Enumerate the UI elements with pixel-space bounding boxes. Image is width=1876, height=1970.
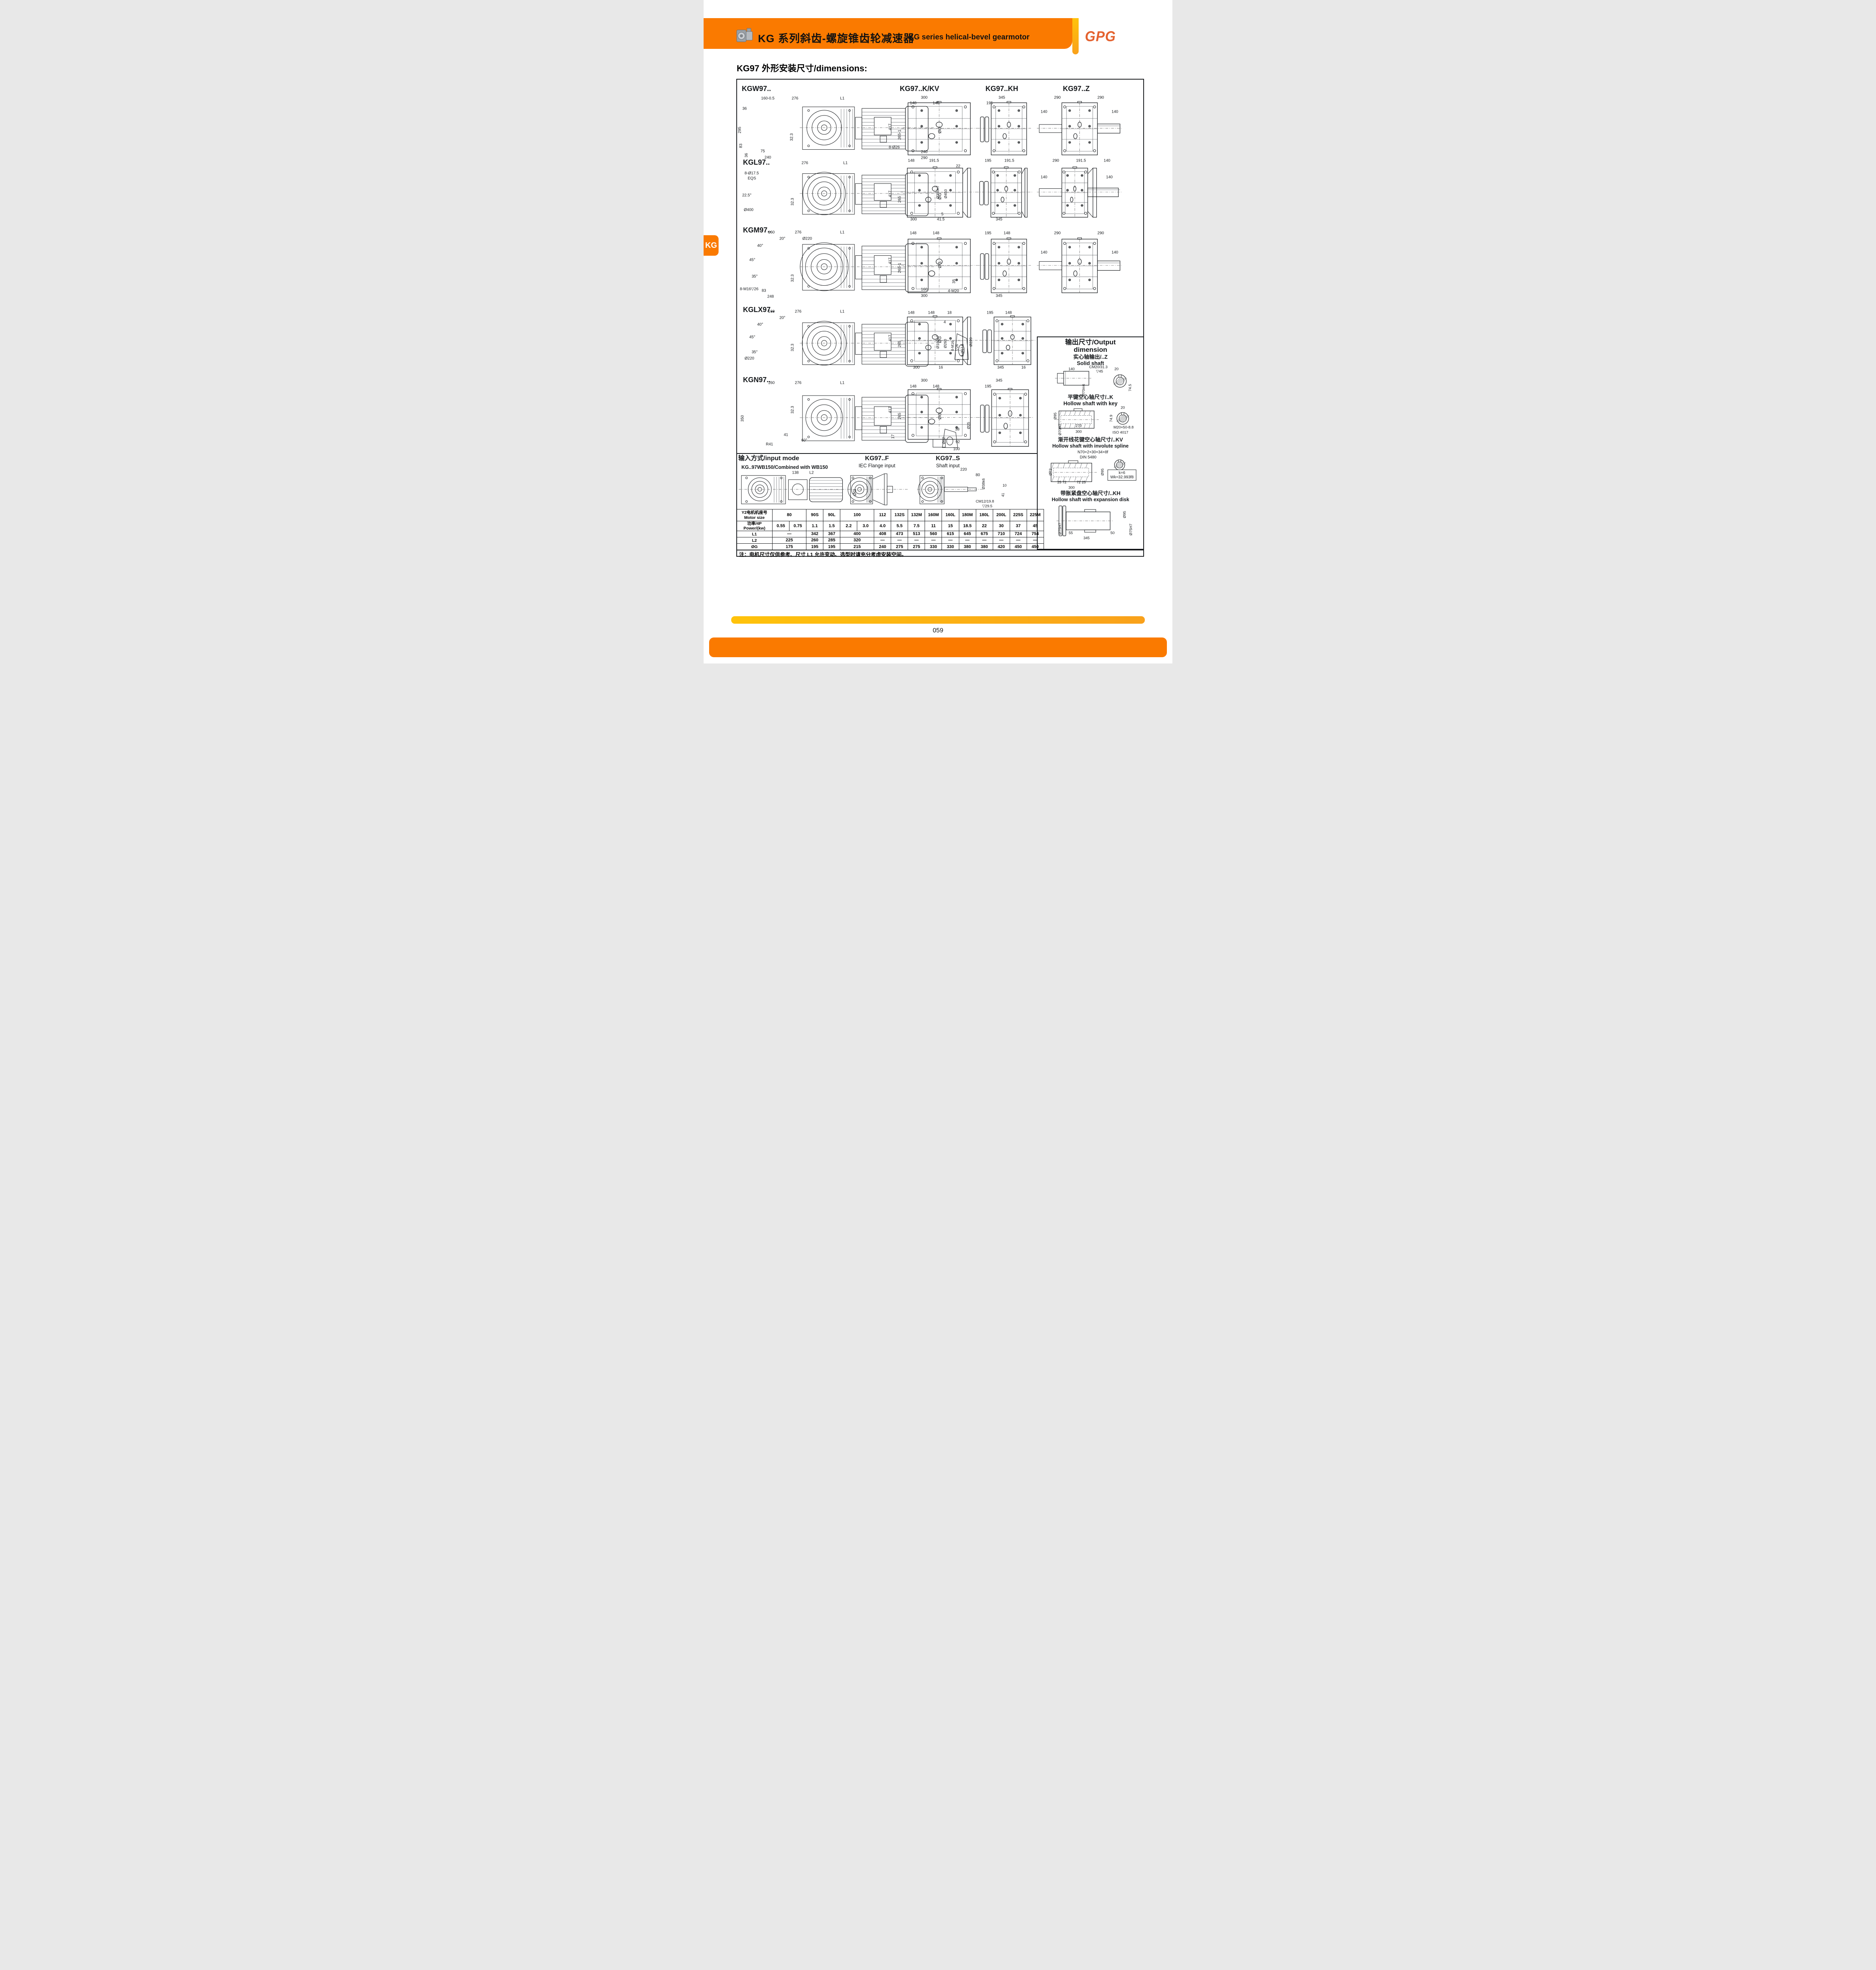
dim-label: 38 [955,427,959,431]
dim-label: 25 [1057,480,1061,484]
dim-label: 22 [956,164,960,168]
table-cell: 615 [942,531,959,537]
dim-label: KG97..Z [1063,85,1090,93]
input-mode-divider [736,453,1038,454]
dim-label: Ø95 [1123,511,1127,518]
dim-label: 195 [985,231,992,235]
dim-label: 74.9 [1110,415,1114,422]
gearmotor-side-view [850,472,905,507]
dim-label: ISO 4017 [1113,431,1128,435]
dim-label: KG97..F [865,455,889,462]
table-cell: 112 [874,509,891,521]
dim-label: 140 [1041,175,1048,179]
dim-label: 240 [921,150,928,154]
dim-label: 191.5 [929,158,939,163]
dim-label: 148 [933,384,940,388]
dim-label: 160 [921,287,928,292]
table-cell: 560 [925,531,942,537]
dim-label: Ø450 [944,189,949,198]
gearmotor-side-view [919,472,981,507]
table-cell: 0.75 [789,521,806,531]
dim-label: 16 [938,365,943,370]
dim-label: ØG [938,413,942,419]
table-cell: 160L [942,509,959,521]
dim-label: Ø220 [802,236,812,241]
table-cell: — [925,537,942,544]
dim-label: L1 [840,309,844,314]
table-cell: 0.55 [773,521,789,531]
table-cell: 11 [925,521,942,531]
gearbox-front-view [1039,238,1120,294]
brand-logo: GPG [1085,29,1116,45]
dim-label: Hollow shaft with expansion disk [1052,497,1129,502]
table-cell: 320 [840,537,874,544]
table-cell: — [976,537,993,544]
dim-label: 265 [897,413,902,420]
dim-label: 8-M16 [951,341,955,351]
dim-label: 输入方式/input mode [738,455,799,462]
dim-label: 345 [996,294,1003,298]
dim-label: CM12/19.8 [976,500,994,504]
table-cell: 408 [874,531,891,537]
dim-label: 55 [1069,532,1073,536]
dim-label: 92 [955,440,960,444]
table-row: L1—3423674004084735135606156456757107247… [737,531,1044,537]
dim-label: 148 [908,310,915,315]
dim-label: 32.3 [790,406,795,413]
gearbox-front-view [982,316,1033,366]
table-cell: 90L [823,509,840,521]
dim-label: 输出尺寸/Output dimension [1049,338,1131,353]
table-cell: 724 [1010,531,1027,537]
dim-label: 140 [1041,110,1048,114]
table-cell: 473 [891,531,908,537]
dim-label: 195 [986,101,993,105]
dim-label: 75 [760,149,765,153]
dim-label: M20×50-8.8 [1114,426,1134,430]
dim-label: 32.3 [789,133,794,141]
dim-label: KGM97.. [743,226,771,234]
dim-label: DIN 5480 [1080,455,1096,459]
dim-label: 平键空心轴尺寸/..K [1068,394,1113,400]
dim-label: 195 [987,310,994,315]
table-row: L2225260285320—————————— [737,537,1044,544]
dim-label: ØG [938,261,942,268]
dim-label: Ø70H7 [1059,424,1063,435]
gearmotor-photo-icon [736,25,754,45]
dim-label: KG97..KH [985,85,1018,93]
dim-label: 45° [749,258,755,262]
table-cell: 400 [840,531,874,537]
dim-label: 220 [960,467,967,472]
table-cell: 285 [823,537,840,544]
dim-label: 417 [888,191,892,197]
table-note: 注：电机尺寸仅供参考、尺寸 L1 允许变动、选型时请充分考虑安装空间。 [739,550,906,558]
side-tab-kg: KG [704,235,719,256]
dim-label: 148 [908,158,915,163]
dim-label: ▽29.5 [982,505,992,509]
dim-label: 32.3 [790,274,795,282]
table-cell: 342 [806,531,823,537]
dim-label: 300 [921,95,928,100]
dim-label: 20 [1114,368,1119,372]
table-cell: 5.5 [891,521,908,531]
dim-label: R41 [766,442,773,446]
dim-label: 8-Ø17.5 [745,171,759,175]
shaft-section-circle [1113,374,1127,388]
table-cell: — [942,537,959,544]
dim-label: 290 [1053,158,1059,163]
dim-label: 295 [737,127,742,134]
table-cell: — [773,531,806,537]
table-cell: 37 [1010,521,1027,531]
table-cell: 132M [908,509,925,521]
dim-label: 265 [897,196,902,203]
table-cell: — [908,537,925,544]
dim-label: 渐开线花键空心轴尺寸/..KV [1058,437,1123,442]
table-cell: 180M [959,509,976,521]
gearbox-front-view [1039,102,1120,156]
dim-label: 41.5 [937,217,944,221]
table-row-header: 功率/4P Power/(kw) [737,521,773,531]
dim-label: k=6 Wk=32.993f8 [1107,470,1136,481]
dim-label: L1 [840,230,844,234]
dim-label: 148 [928,310,935,315]
table-cell: 225M [1027,509,1044,521]
dim-label: 32.3 [790,344,795,351]
dim-label: 32.3 [790,198,795,205]
dim-label: N70×2×30×34×8f [1077,450,1108,454]
dim-label: Ø38k6 [982,478,986,489]
table-row-header: L2 [737,537,773,544]
dim-label: ØG [853,489,857,496]
dim-label: 417 [888,335,892,342]
dim-label: 45° [749,335,755,339]
table-row-header: L1 [737,531,773,537]
dim-label: 265-1 [897,263,902,273]
table-row: Y2电机机座号 Motor size8090S90L100112132S132M… [737,509,1044,521]
dimension-table: Y2电机机座号 Motor size8090S90L100112132S132M… [736,509,1044,550]
dim-label: 265-1 [897,130,902,140]
dim-label: KGW97.. [742,85,771,93]
table-cell: 513 [908,531,925,537]
table-cell: 645 [959,531,976,537]
dim-label: 300 [1075,430,1082,435]
dim-label: Ø260 [944,339,948,348]
dim-label: 290 [1054,231,1061,235]
dim-label: 300 [921,378,928,383]
table-cell: 710 [993,531,1010,537]
dim-label: 148 [1004,231,1010,235]
table-cell: — [959,537,976,544]
table-cell: 18.5 [959,521,976,531]
dim-label: Ø400 [744,208,753,212]
dim-label: 140 [1104,158,1111,163]
dim-label: 276 [802,161,808,165]
dim-label: 417 [888,407,892,413]
dim-label: 140 [1112,110,1118,114]
dim-label: Ø220 [970,337,974,346]
dim-label: 72 [1062,480,1066,484]
dim-label: 35 [952,279,956,283]
dim-label: 18 [947,310,951,315]
dim-label: L1 [840,381,844,385]
dim-label: 140 [1112,250,1118,255]
page-title-cn: KG 系列斜齿-螺旋锥齿轮减速器 [758,30,914,45]
dim-label: 160 [768,309,775,314]
dim-label: 276 [795,309,802,314]
dim-label: 16 [1021,365,1025,370]
dim-label: 8-M16▽26 [740,287,758,291]
table-cell: — [993,537,1010,544]
page-number: 059 [704,627,1172,634]
dim-label: 265 [897,341,902,348]
dim-label: 4-M20 [948,289,959,293]
dim-label: 83 [739,143,743,148]
gearbox-front-view [979,167,1030,218]
table-cell: 225 [773,537,806,544]
dim-label: 148 [910,101,917,105]
dim-label: 160 [768,381,775,385]
dim-label: Ø95 [1101,468,1105,476]
footer-orange-band [709,637,1167,657]
dim-label: 20 [1121,406,1125,411]
dim-label: ▽45 [1096,370,1103,374]
dim-label: 417 [888,258,892,264]
dim-label: 148 [910,384,917,388]
table-cell: — [1010,537,1027,544]
table-cell: 7.5 [908,521,925,531]
table-cell: 15 [942,521,959,531]
shaft-section-circle [1116,412,1129,425]
dim-label: L1 [840,96,844,100]
dim-label: 160-0.5 [761,96,775,100]
dim-label: 20° [779,236,785,241]
dim-label: 148 [1005,310,1012,315]
dim-label: 195 [985,158,992,163]
dim-label: ▽26 [955,344,959,351]
dim-label: 300 [910,217,917,221]
dim-label: 20° [779,316,785,320]
dim-label: 345 [996,378,1003,383]
table-cell: — [1027,537,1044,544]
dim-label: 140 [1106,175,1113,179]
footer-gold-band [731,616,1145,624]
table-cell: 30 [993,521,1010,531]
dim-label: Hollow shaft with involute spline [1052,443,1129,449]
dim-label: 40° [757,243,763,248]
dim-label: 417 [888,124,892,130]
table-cell: — [891,537,908,544]
dim-label: 248 [767,294,774,299]
table-cell: 180L [976,509,993,521]
dim-label: Ø350h7 [936,186,941,199]
dim-label: 22.5° [742,193,751,197]
dim-label: 带胀紧盘空心轴尺寸/..KH [1061,490,1120,496]
dim-label: 8-Ø17.5 [960,344,964,357]
dim-label: ØG [938,126,942,133]
table-row-header: Y2电机机座号 Motor size [737,509,773,521]
dim-label: 300 [1068,486,1075,491]
gearmotor-side-view [741,472,851,507]
dim-label: 345 [996,217,1003,221]
gearbox-front-view [979,238,1029,294]
dim-label: 290 [1098,95,1104,100]
section-title: KG97 外形安装尺寸/dimensions: [737,61,867,74]
dim-label: 140 [1068,368,1075,372]
dim-label: 10 [1003,483,1007,487]
dim-label: 148 [933,101,940,105]
table-cell: 675 [976,531,993,537]
dim-label: KG..97WB150/Combined with WB150 [741,465,828,470]
table-row: 功率/4P Power/(kw)0.550.751.11.52.23.04.05… [737,521,1044,531]
dim-label: 40° [757,322,763,327]
table-cell: 160M [925,509,942,521]
dim-label: 350 [740,415,745,422]
dim-label: L1 [843,161,847,165]
gearbox-front-view [979,388,1031,448]
table-cell: 22 [976,521,993,531]
dim-label: Ø25 [967,422,971,429]
dim-label: 148 [933,231,940,235]
page-title-en: KG series helical-bevel gearmotor [908,33,1029,42]
dim-label: Ø75H7 [1059,523,1063,535]
table-cell: 754 [1027,531,1044,537]
dim-label: KG97..S [936,455,960,462]
dim-label: 290 [1054,95,1061,100]
dim-label: 160 [768,230,775,234]
dim-label: 300 [921,294,928,298]
table-cell: 45 [1027,521,1044,531]
dim-label: 4 [944,320,946,324]
header-gold-accent [1072,18,1079,54]
dim-label: 25 [1082,480,1086,484]
dim-label: 345 [999,95,1005,100]
dim-label: 276 [792,96,799,100]
dim-label: EQS [748,176,756,180]
table-cell: 260 [806,537,823,544]
table-cell: 90S [806,509,823,521]
dim-label: IEC Flange input [858,463,895,468]
dim-label: 36 [744,153,749,157]
dim-label: Ø52 [942,437,947,444]
dim-label: 270 [1075,424,1082,429]
dim-label: 35° [752,274,758,279]
dim-label: L2 [809,470,814,475]
dim-label: Hollow shaft with key [1063,400,1117,406]
dim-label: 80 [975,473,980,477]
dim-label: Shaft input [936,463,960,468]
table-cell: 367 [823,531,840,537]
dim-label: 35° [752,350,758,354]
dim-label: 实心轴输出/..Z [1074,354,1108,360]
dim-label: 300 [913,365,920,370]
dim-label: Ø180h7 [936,335,941,349]
catalog-page: KG 系列斜齿-螺旋锥齿轮减速器 KG series helical-bevel… [704,0,1172,663]
dim-label: 100 [953,447,960,451]
dim-label: 195 [985,384,992,388]
gearbox-front-view [979,102,1029,156]
dim-label: 72 [1077,480,1081,484]
table-cell: 2.2 [840,521,857,531]
dim-label: 191.5 [1076,158,1086,163]
dim-label: 148 [910,231,917,235]
table-cell: 1.1 [806,521,823,531]
dim-label: 345 [997,365,1004,370]
dim-label: KG97..K/KV [900,85,939,93]
table-cell: 132S [891,509,908,521]
dim-label: 345 [1083,537,1090,541]
table-cell: 4.0 [874,521,891,531]
table-cell: — [874,537,891,544]
dim-label: 276 [795,381,802,385]
table-cell: 225S [1010,509,1027,521]
dim-label: 8-Ø26 [889,145,900,149]
dim-label: Ø220 [745,356,754,361]
table-cell: 200L [993,509,1010,521]
dim-label: 140 [1041,250,1048,255]
table-cell: 1.5 [823,521,840,531]
dim-label: Ø75H7 [1129,524,1134,535]
dim-label: 290 [921,156,928,160]
dim-label: 50 [1111,532,1115,536]
table-cell: 80 [773,509,806,521]
dim-label: 41 [1001,493,1005,497]
dim-label: 83 [762,288,766,293]
dim-label: Ø95 [1054,413,1058,420]
dim-label: 74.5 [1129,384,1133,392]
dim-label: 17 [891,434,895,439]
dim-label: 60° [801,438,807,442]
output-shaft-drawing [1059,506,1110,536]
table-cell: 3.0 [857,521,874,531]
dim-label: 290 [1098,231,1104,235]
dim-label: 138 [792,470,799,475]
dim-label: 276 [795,230,802,234]
dim-label: 36 [742,106,747,111]
table-cell: 100 [840,509,874,521]
dim-label: 191.5 [1004,158,1014,163]
shaft-section-circle [1114,459,1125,470]
dim-label: Ø72 [1049,468,1053,476]
dim-label: 5 [941,212,944,216]
dim-label: 41 [784,433,788,437]
dim-label: KGN97.. [743,376,771,384]
dim-label: KGL97.. [743,158,770,166]
